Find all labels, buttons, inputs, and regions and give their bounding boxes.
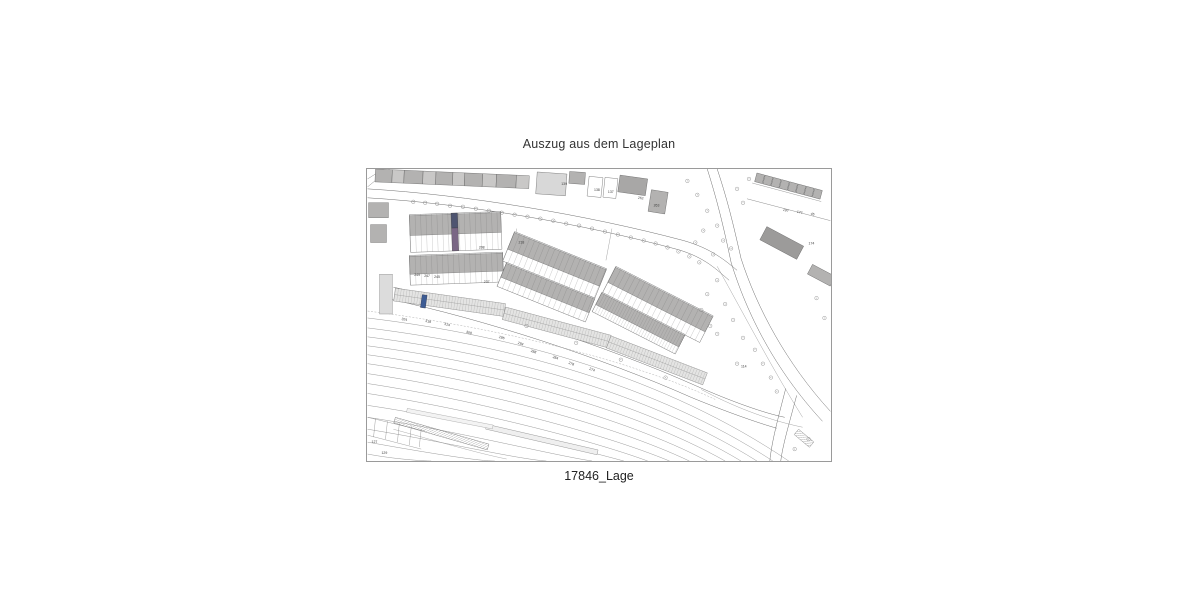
parcel-label: 245 — [434, 275, 440, 279]
parcel-label: 177 — [796, 210, 803, 215]
parcel-label: 139 — [561, 182, 567, 186]
parcel-label: 114 — [741, 365, 747, 369]
parcel-label: 263 — [654, 204, 660, 208]
parcel-label: 237 — [484, 280, 490, 284]
site-plan-map: 139 138 137 262 263 218 208 249 247 245 … — [367, 169, 831, 461]
parcel-label: 288 — [530, 349, 537, 355]
parcel-label: 208 — [479, 245, 485, 249]
parcel-label: 247 — [424, 274, 430, 278]
document-page: Auszug aus dem Lageplan — [0, 0, 1200, 600]
parcel-label: 274 — [589, 367, 596, 373]
parcel-label: 308 — [466, 330, 473, 335]
parcel-label: 174 — [809, 241, 815, 245]
parcel-label: 324 — [401, 317, 407, 322]
parcel-label: 296 — [498, 335, 505, 340]
parcel-label: 249 — [414, 273, 420, 277]
parcel-label: 45 — [810, 212, 815, 217]
parcel-label: 138 — [594, 188, 600, 192]
parcel-label: 137 — [608, 190, 614, 194]
parcel-label: 262 — [638, 196, 644, 201]
parcel-label: 218 — [519, 240, 525, 244]
parcel-label: 278 — [568, 361, 575, 367]
parcel-label: 284 — [552, 355, 559, 361]
parcel-label: 129 — [381, 451, 387, 455]
parcel-label: 318 — [425, 319, 432, 324]
highlight-parcel-primary — [451, 213, 459, 251]
map-caption: 17846_Lage — [366, 469, 832, 483]
parcel-label: 294 — [517, 341, 524, 347]
parcel-label: 127 — [372, 440, 378, 444]
map-title: Auszug aus dem Lageplan — [366, 137, 832, 151]
parcel-label: 197 — [782, 208, 789, 213]
parcel-label: 314 — [444, 322, 451, 327]
terraced-row-a — [409, 211, 502, 252]
site-plan-frame: 139 138 137 262 263 218 208 249 247 245 … — [366, 168, 832, 462]
